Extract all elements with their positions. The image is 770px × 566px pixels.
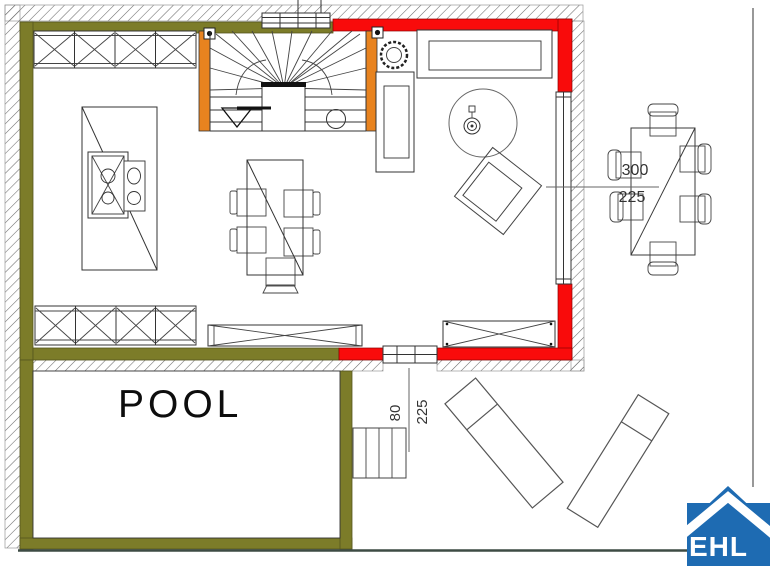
round-rug-with-lamp [449, 89, 517, 157]
dim-steps-width: 80 [387, 395, 403, 431]
cooktop [124, 161, 145, 211]
right-window [556, 92, 571, 284]
sun-lounger [567, 395, 669, 528]
sideboard-left [208, 325, 362, 346]
kitchen-island [82, 107, 157, 270]
sofa-horizontal [417, 30, 552, 78]
pool-label: POOL [118, 383, 242, 427]
dim-terrace-depth: 225 [613, 189, 651, 207]
lounge-chair-diagonal [454, 147, 541, 234]
sideboard-right [443, 321, 555, 347]
sun-lounger [445, 378, 563, 508]
terrace-door [383, 346, 437, 363]
dim-steps-depth: 225 [414, 392, 430, 432]
top-window [262, 0, 330, 28]
wardrobe-top-row [34, 31, 196, 68]
stair-newel-circle [327, 110, 346, 129]
floor-plan: POOL 300 225 80 225 EHL [0, 0, 770, 566]
floor-plan-drawing [0, 0, 770, 566]
potted-plant [381, 42, 407, 68]
terrace-steps [353, 428, 406, 478]
wardrobe-bottom-row [35, 306, 196, 345]
staircase [210, 31, 366, 131]
ehl-logo-text: EHL [689, 531, 748, 563]
dim-terrace-width: 300 [616, 162, 654, 180]
sofa-vertical [376, 72, 414, 172]
dining-set-interior [230, 160, 320, 293]
dimension-lines [409, 187, 659, 452]
